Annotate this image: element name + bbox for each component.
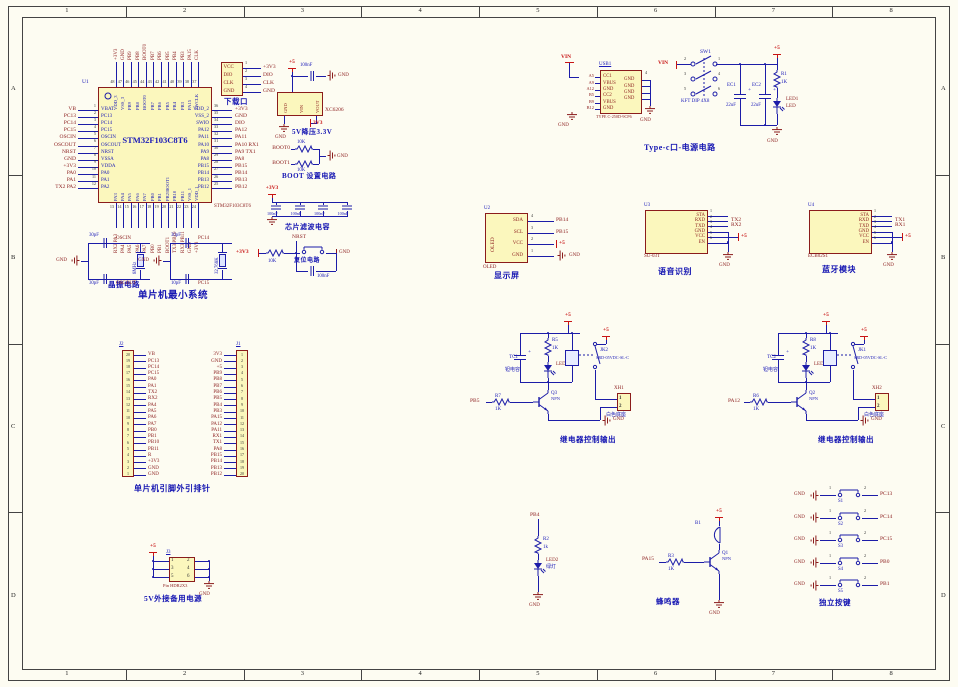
gnd-label: GND [794, 492, 805, 497]
pin-number: 23 [182, 205, 189, 209]
wire [676, 61, 677, 69]
pin-name: VCC [673, 234, 705, 239]
net-label: PA7 [148, 422, 156, 427]
pin-name: PA1 [101, 178, 109, 183]
net-label: PC13 [40, 114, 76, 120]
res-designator: R8 [810, 338, 816, 343]
wire [862, 585, 878, 586]
cap-value: 100nF [317, 274, 329, 279]
resistor-symbol[interactable] [295, 145, 313, 153]
pin-number: 24 [189, 205, 196, 209]
pin-number: 39 [175, 80, 182, 84]
gnd-label: GND [338, 73, 349, 78]
wire [134, 431, 146, 432]
resistor-symbol[interactable] [534, 536, 542, 554]
oled-part: OLED [491, 237, 497, 252]
wire [855, 344, 864, 345]
wire [243, 92, 261, 93]
ground-icon [532, 592, 544, 601]
led-value: 绿灯 [546, 565, 556, 570]
net-label: PA9 TX1 [235, 150, 256, 156]
res-value: 1k [543, 545, 548, 550]
pin-name: VDDA [101, 164, 115, 169]
wire [170, 279, 232, 280]
capacitor-symbol[interactable] [101, 274, 109, 284]
ground-icon [603, 414, 612, 426]
wire [759, 94, 771, 95]
pin-name: PA11 [155, 135, 209, 140]
pin-number: 6 [187, 574, 190, 579]
wire [195, 561, 209, 562]
wire [806, 420, 858, 421]
npn-transistor-symbol[interactable] [533, 390, 551, 414]
pin-name: PC14 [101, 121, 112, 126]
pin-name: NRST [101, 150, 114, 155]
ground-icon [278, 124, 290, 133]
wire [936, 344, 950, 345]
pin-name: VCC [497, 241, 523, 246]
header-designator: J1 [236, 342, 240, 347]
typec-title: Type-c口-电源电路 [644, 144, 716, 152]
wire [224, 355, 236, 356]
net-label: PB5 [180, 396, 222, 401]
net-label: OSCOUT [116, 281, 136, 286]
wire [778, 360, 779, 382]
capacitor-symbol[interactable] [308, 266, 316, 276]
pin-number: 1 [710, 209, 712, 213]
buzzer-symbol[interactable] [707, 526, 723, 544]
pin-number: 11 [236, 416, 248, 420]
res-value: 1K [753, 407, 759, 412]
pin-number: 35 [214, 111, 218, 115]
pin-name: GND [603, 106, 613, 111]
npn-transistor-symbol[interactable] [791, 390, 809, 414]
wire [740, 125, 777, 126]
power-3v3-label: 3V3 [313, 121, 322, 127]
oled-title: 显示屏 [494, 272, 520, 280]
pin-number: 4 [718, 72, 720, 76]
pin-name: SDA [497, 218, 523, 223]
ground-icon [810, 489, 819, 501]
net-label: PB10 [148, 440, 159, 445]
pin-number: 17 [137, 205, 144, 209]
pin-number: A9 [578, 81, 594, 86]
pin-number: 8 [84, 153, 96, 157]
pin-number: 12 [122, 403, 134, 407]
pin-number: 10 [84, 167, 96, 171]
relay-part: SRD-05VDC-SL-C [854, 356, 887, 360]
pin-name: PB0 [151, 193, 156, 201]
res-designator: R7 [495, 394, 501, 399]
npn-transistor-symbol[interactable] [704, 550, 722, 574]
net-label: PB1 [148, 434, 157, 439]
pin-name: GND [284, 103, 289, 113]
net-label: PB9 [128, 51, 133, 60]
pin-name: PA12 [155, 128, 209, 133]
relay-link [579, 353, 594, 363]
wire [361, 6, 362, 17]
pin-number: 14 [122, 390, 134, 394]
wire [520, 360, 521, 382]
wire [88, 243, 89, 280]
wire [272, 202, 348, 203]
net-label: GND [235, 114, 247, 120]
pin-name: VSS_3 [121, 97, 126, 110]
boot-title: BOOT 设置电路 [282, 173, 336, 180]
frame-col-label: 4 [417, 671, 423, 678]
frame-col-label: 1 [64, 8, 70, 15]
net-label: PA1 [40, 178, 76, 184]
pin-name: VCC [224, 65, 234, 70]
wire [765, 99, 766, 125]
buzzer-designator: B1 [695, 521, 701, 526]
net-label: BOOT0 [143, 44, 148, 60]
cap-designator: TC1 [502, 355, 518, 360]
wire [316, 76, 326, 77]
pin1-marker [104, 92, 112, 100]
usb-part: TYPE C-250D-9CP6 [596, 115, 632, 119]
key-button-symbol[interactable] [836, 533, 862, 543]
transistor-type: NPN [551, 397, 560, 402]
capacitor-symbol[interactable] [101, 238, 109, 248]
switch-link [700, 58, 708, 96]
headers-title: 单片机引脚外引排针 [134, 485, 211, 493]
pin-name: PA5 [128, 193, 133, 201]
reset-title: 复位电路 [294, 258, 320, 264]
relay-link [837, 353, 852, 363]
net-label: PB3 [180, 409, 222, 414]
pin-number: 26 [214, 175, 218, 179]
wire [872, 243, 892, 244]
pin-name: GND [497, 253, 523, 258]
wire [778, 333, 779, 355]
pin-number: 11 [122, 409, 134, 413]
pin-name: RXD [837, 218, 869, 223]
key-button-symbol[interactable] [836, 488, 862, 498]
pin-name: OSCOUT [101, 143, 121, 148]
polarity-plus: + [786, 350, 789, 356]
pin-number: 4 [531, 214, 533, 218]
resistor-symbol[interactable] [266, 249, 284, 257]
wire [81, 261, 88, 262]
net-label: OSCIN [116, 236, 131, 241]
frame-row-label: A [11, 86, 16, 93]
pin-number: 2 [864, 531, 866, 535]
pin-number: 1 [829, 486, 831, 490]
wire [820, 540, 836, 541]
net-label: PC13 [148, 359, 159, 364]
pin-name: GND [624, 90, 634, 95]
pin-name: PA6 [136, 193, 141, 201]
pin-number: B12 [578, 106, 594, 111]
frame-col-label: 7 [770, 671, 776, 678]
frame-col-label: 8 [888, 8, 894, 15]
gnd-label: GND [199, 592, 210, 597]
net-label: PA6 [148, 415, 156, 420]
pin-name: VBUS [603, 81, 616, 86]
resistor-symbol[interactable] [295, 160, 313, 168]
frame-row-label: B [941, 255, 945, 262]
pin-number: 4 [645, 71, 647, 75]
wire [361, 670, 362, 681]
net-label: VB [148, 352, 155, 357]
pin-name: RXD [673, 218, 705, 223]
ground-icon [203, 581, 215, 590]
pin-name: GND [673, 229, 705, 234]
oled-designator: U2 [484, 206, 490, 211]
pin-number: 6 [710, 236, 712, 240]
pin-number: 3 [245, 77, 247, 81]
frame-col-label: 7 [770, 8, 776, 15]
wire [224, 450, 236, 451]
pin-name: PA9 [155, 150, 209, 155]
led-symbol[interactable] [800, 362, 812, 378]
net-label: PA15 [188, 49, 193, 60]
gnd-label: GND [337, 154, 348, 159]
net-label: PA10 RX1 [235, 143, 259, 149]
wire [224, 412, 236, 413]
frame-col-label: 5 [535, 8, 541, 15]
led-designator: LED2 [546, 558, 558, 563]
relay-coil[interactable] [565, 350, 579, 366]
gnd-label: GND [339, 250, 350, 255]
gnd-label: GND [134, 258, 149, 263]
capacitor-symbol[interactable] [183, 274, 191, 284]
frame-col-label: 6 [653, 671, 659, 678]
wire [134, 462, 146, 463]
wire [224, 387, 236, 388]
sw-part: KFT DIP 4X8 [681, 99, 709, 104]
res-designator: R5 [552, 338, 558, 343]
pin-number: 6 [84, 139, 96, 143]
net-label: RX2 [148, 396, 157, 401]
pin-number: 2 [122, 466, 134, 470]
res-value: 1K [668, 567, 674, 572]
wire [806, 382, 807, 390]
pin-name: PB5 [166, 102, 171, 110]
pin-name: CLK [224, 81, 234, 86]
net-label: DIO [235, 121, 245, 127]
crystal-symbol[interactable] [219, 254, 226, 267]
power-5v-label: +5 [707, 509, 731, 515]
gnd-label: GND [275, 135, 286, 140]
wire [830, 366, 831, 382]
wire [198, 62, 199, 87]
pin-number: 34 [214, 118, 218, 122]
wire [479, 6, 480, 17]
pin-name: PC15 [101, 128, 112, 133]
wire [224, 393, 236, 394]
net-label: PA15 [180, 415, 222, 420]
power-5v-label: +5 [556, 313, 580, 319]
key-button-symbol[interactable] [836, 556, 862, 566]
net-label: PB5 [166, 51, 171, 60]
wire [597, 670, 598, 681]
pin-number: 19 [122, 359, 134, 363]
resistor-symbol[interactable] [544, 338, 552, 356]
resistor-symbol[interactable] [773, 70, 781, 88]
wire [740, 64, 777, 65]
wire [212, 188, 232, 189]
pin-name: PB4 [173, 102, 178, 110]
net-label: PB15 [180, 453, 222, 458]
net-label: PA12 [180, 422, 222, 427]
pin-number: 41 [160, 80, 167, 84]
gnd-label: GND [794, 582, 805, 587]
module-designator: U3 [644, 203, 650, 208]
pin-number: 1 [877, 396, 880, 401]
ground-icon [644, 106, 656, 115]
pin-name: GND [624, 77, 634, 82]
pin-name: SWCLK [195, 94, 200, 110]
gnd-label: GND [794, 515, 805, 520]
pin-name: TXD [673, 224, 705, 229]
wire [209, 561, 210, 581]
wire [568, 325, 569, 333]
pin-number: 1 [829, 554, 831, 558]
pin-number: B9 [578, 100, 594, 105]
pin-number: 16 [129, 205, 136, 209]
pin-name: DIO [224, 73, 233, 78]
wire [163, 261, 170, 262]
net-label: PB0 [148, 428, 157, 433]
pin-number: 42 [152, 80, 159, 84]
wire [224, 443, 236, 444]
relay-coil[interactable] [823, 350, 837, 366]
key-button-symbol[interactable] [836, 511, 862, 521]
pin-number: 10 [122, 416, 134, 420]
wire [153, 569, 169, 570]
pin-number: 1 [829, 576, 831, 580]
relay2-title: 继电器控制输出 [818, 436, 874, 444]
pin-number: 5 [236, 378, 248, 382]
power-3v3-label: +3V3 [260, 186, 284, 192]
wire [134, 380, 146, 381]
net-label: PA4 [121, 245, 126, 253]
wire [862, 495, 878, 496]
pin-number: 2 [864, 486, 866, 490]
power-5v-label: +5 [594, 328, 618, 334]
cap-value: 22uF [751, 103, 761, 108]
res-designator: R1 [781, 72, 787, 77]
net-label: +5 [180, 365, 222, 370]
resistor-symbol[interactable] [802, 338, 810, 356]
pin-name: EN [673, 240, 705, 245]
wire [272, 216, 348, 217]
pin-number: 7 [122, 434, 134, 438]
wire [862, 563, 878, 564]
frame-col-label: 3 [299, 671, 305, 678]
wire [296, 241, 297, 253]
gnd-label: GND [569, 253, 580, 258]
wire [8, 344, 22, 345]
pin-number: B5 [578, 93, 594, 98]
net-label: RX1 [895, 223, 905, 229]
pin-number: 36 [214, 104, 218, 108]
net-label: PC14 [880, 515, 892, 521]
pin-name: PA7 [143, 193, 148, 201]
led-symbol[interactable] [542, 362, 554, 378]
wire [595, 370, 596, 399]
capacitor-symbol[interactable] [183, 238, 191, 248]
wire [224, 368, 236, 369]
pin-name: PA8 [155, 157, 209, 162]
wire [224, 399, 236, 400]
pin-number: 9 [236, 403, 248, 407]
net-label: R [148, 453, 151, 458]
ground-icon [861, 414, 870, 426]
wire [820, 563, 836, 564]
ground-icon [566, 112, 578, 121]
led-symbol[interactable] [771, 98, 783, 114]
led-symbol[interactable] [532, 560, 544, 576]
pin-number: 4 [874, 225, 876, 229]
res-value: 10K [297, 168, 305, 173]
pin-number: 1 [236, 353, 248, 357]
ground-icon [328, 150, 337, 162]
backup-part: Pin HDR2X3 [163, 584, 187, 589]
wire [8, 175, 22, 176]
wire [224, 361, 236, 362]
wire [820, 495, 836, 496]
capacitor-symbol[interactable] [308, 71, 316, 81]
pin-number: 1 [874, 209, 876, 213]
reset-button-symbol[interactable] [300, 245, 326, 255]
pin-number: 3 [122, 460, 134, 464]
cap-value: 钽电容 [746, 368, 778, 373]
net-label: PB8 [136, 51, 141, 60]
wire [134, 412, 146, 413]
mcu-designator: U1 [82, 80, 89, 86]
pin-number: 14 [114, 205, 121, 209]
pin-name: PA2 [101, 185, 109, 190]
pin-name: PA15 [188, 100, 193, 110]
pin-name: VBUS [603, 100, 616, 105]
wire [642, 80, 650, 81]
wire [8, 512, 22, 513]
wire [224, 374, 236, 375]
crystal-value: 8MHz [133, 262, 138, 274]
pin-number: 5 [171, 574, 174, 579]
wire [716, 64, 740, 65]
pin-number: 15 [122, 384, 134, 388]
pin-name: VIN [300, 105, 305, 113]
wire [830, 333, 831, 350]
ldo-part: XC6206 [325, 108, 344, 114]
wire [134, 418, 146, 419]
pin-name: VOUT [316, 101, 321, 114]
wire [569, 68, 570, 77]
ground-icon [810, 557, 819, 569]
net-label: PA12 [235, 128, 247, 134]
net-label: PC15 [198, 281, 209, 286]
net-label: VB [40, 107, 76, 113]
pin-name: PB13 [155, 178, 209, 183]
net-label: PC14 [40, 121, 76, 127]
conn-designator: XH2 [872, 386, 882, 391]
wire [862, 518, 878, 519]
res-value: 1K [781, 80, 787, 85]
cap-designator: TC2 [760, 355, 776, 360]
wire [820, 585, 836, 586]
wire [224, 380, 236, 381]
wire [936, 175, 950, 176]
net-label: PB0 [880, 560, 889, 566]
wire [719, 574, 720, 600]
ground-icon [810, 512, 819, 524]
mcu-part-label: STM32F103C8T6 [214, 204, 251, 209]
key-button-symbol[interactable] [836, 578, 862, 588]
